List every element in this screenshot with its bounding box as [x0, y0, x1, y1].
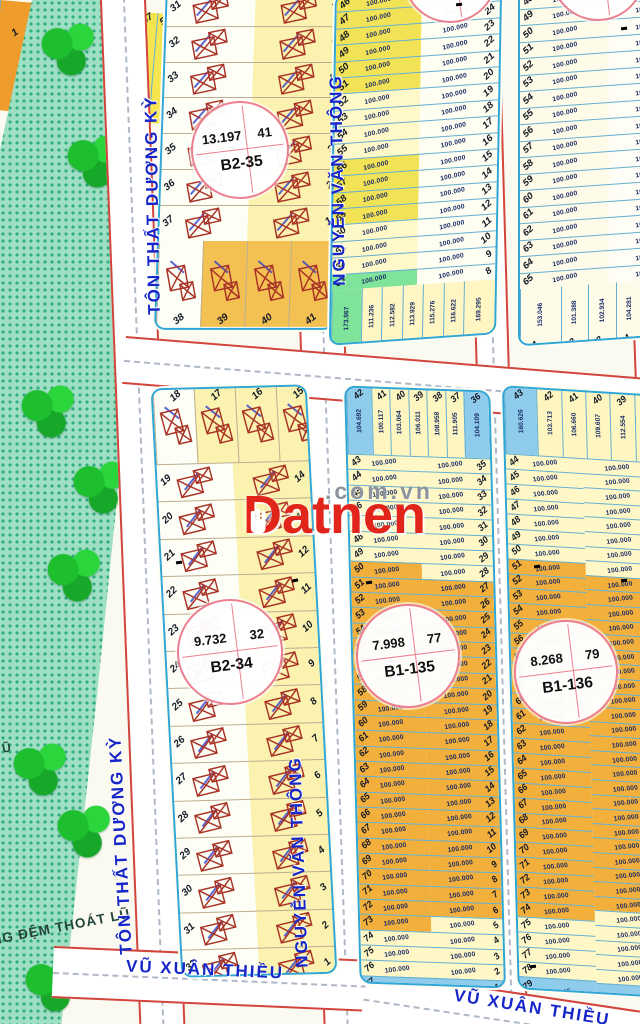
lot-number: 1	[322, 957, 334, 969]
lot-area-value: 100.000	[613, 813, 639, 822]
lot-number: 39	[216, 311, 232, 327]
lot-number: 21	[482, 51, 497, 66]
lot-number: 38	[430, 390, 444, 404]
lot-area-value: 100.000	[365, 61, 391, 74]
lot-row-bottom: 38 39	[156, 241, 335, 327]
lot-cell: 14	[233, 460, 311, 499]
lot-area-value: 100.000	[604, 478, 630, 487]
lot-number: 15	[482, 765, 496, 779]
lot-number: 9	[483, 249, 494, 261]
lot-number: 51	[352, 576, 366, 590]
lot-number: 5	[491, 920, 501, 931]
lot-area-value: 100.000	[635, 35, 640, 48]
lot-number: 8	[309, 695, 321, 707]
lot-area-value: 101.388	[571, 300, 578, 324]
lot-number: 3	[318, 882, 330, 894]
lot-number: 4	[491, 935, 501, 946]
house-icon	[188, 762, 234, 799]
lot-area-value: 100.000	[441, 88, 467, 101]
lot-area-value: 100.000	[442, 39, 468, 52]
lot-number: 11	[480, 215, 495, 230]
lot-area-value: 100.000	[447, 844, 473, 854]
lot-area-value: 100.000	[551, 173, 577, 186]
lot-area-value: 100.000	[551, 25, 577, 38]
house-icon	[162, 261, 198, 306]
lot-number: 4	[316, 845, 328, 857]
lot-number: 76	[519, 932, 533, 946]
lot-number: 25	[478, 611, 492, 625]
lot-area-value: 100.000	[543, 892, 569, 901]
lot-area-value: 100.000	[541, 817, 567, 826]
lot-area-value: 100.000	[615, 886, 640, 895]
lot-cell: 41 100.117	[371, 388, 391, 455]
lot-area-value: 100.000	[366, 28, 392, 41]
lot-area-value: 100.000	[446, 798, 472, 808]
lot-number: 41	[374, 388, 388, 402]
lot-number: 54	[511, 603, 525, 617]
lot-area-value: 100.000	[445, 767, 471, 777]
house-icon	[250, 499, 296, 536]
lot-area-value: 100.000	[437, 460, 463, 470]
lot-area-value: 164.535	[617, 995, 640, 999]
lot-number: 74	[361, 929, 375, 943]
house-icon	[186, 725, 232, 762]
block-strip-1: 46 100.000 47 100.000 48 100.000 49 100.…	[329, 0, 502, 346]
lot-area-value: 100.000	[635, 2, 640, 15]
lot-number: 75	[519, 917, 533, 931]
lot-area-value: 100.000	[439, 236, 465, 249]
lot-cell: 27	[172, 761, 250, 800]
lot-area-value: 100.000	[450, 951, 476, 961]
lot-area-value: 100.000	[607, 595, 633, 604]
block-area: 13.197	[194, 126, 248, 147]
lot-number: 18	[168, 388, 184, 404]
lot-area-value: 100.000	[378, 734, 404, 744]
lot-area-value: 100.000	[607, 580, 633, 589]
lot-area-value: 100.000	[439, 537, 465, 547]
lot-area-value: 111.905	[452, 413, 460, 436]
lot-number: 2	[492, 966, 502, 977]
lot-number: 46	[508, 484, 522, 498]
lot-cell: 39 106.011	[408, 390, 428, 457]
lot-area-value: 100.000	[381, 872, 407, 882]
lot-area-value: 100.000	[440, 170, 466, 183]
lot-number: 13	[483, 795, 497, 809]
lot-number: 45	[350, 484, 364, 498]
lot-area-value: 100.000	[450, 936, 476, 946]
lot-number: 21	[480, 673, 494, 687]
lot-column-left: 44 100.000 45 100.000 46 100.000 47 100.…	[506, 453, 598, 998]
lot-number: 65	[521, 273, 536, 288]
block-lot-count: 79	[574, 644, 611, 663]
lot-area-value: 100.000	[605, 507, 631, 516]
lot-area-value: 100.000	[551, 157, 577, 170]
lot-area-value: 112.582	[389, 303, 396, 327]
lot-area-value: 108.958	[433, 412, 441, 436]
lot-area-value: 100.000	[384, 964, 410, 974]
lot-area-value: 100.000	[635, 217, 640, 230]
lot-number: 53	[510, 588, 524, 602]
house-icon	[156, 404, 194, 450]
lot-number: 35	[163, 142, 179, 158]
block-area: 9.732	[181, 628, 240, 650]
lot-cell: 3 112.582	[381, 286, 403, 346]
lot-area-value: 100.000	[613, 799, 639, 808]
lot-area-value: 100.000	[635, 101, 640, 114]
lot-area-value: 113.929	[409, 302, 416, 326]
lot-area-value: 100.000	[441, 598, 467, 608]
lot-number: 1	[530, 339, 541, 347]
lot-number: 67	[516, 797, 530, 811]
lot-number: 55	[521, 108, 536, 123]
lot-number: 43	[511, 387, 525, 401]
lot-number: 39	[411, 389, 425, 403]
lot-number: 2	[320, 919, 332, 931]
lot-cell: 20	[158, 500, 236, 539]
lot-area-value: 100.000	[365, 44, 391, 57]
lot-cell: 37 111.905	[445, 391, 465, 458]
lot-area-value: 100.000	[380, 811, 406, 821]
lot-number: 5	[426, 338, 437, 345]
lot-area-value: 100.000	[439, 522, 465, 532]
lot-number: 37	[449, 390, 463, 404]
lot-area-value: 100.000	[371, 489, 397, 499]
lot-area-value: 100.000	[439, 203, 465, 216]
block-lot-count: 41	[247, 122, 282, 141]
lot-area-value: 100.000	[544, 922, 570, 931]
lot-cell: 21	[160, 537, 238, 576]
lot-number: 22	[479, 657, 493, 671]
lot-number: 19	[158, 473, 174, 489]
lot-area-value: 100.000	[443, 690, 469, 700]
lot-cell: 41 106.660	[561, 391, 587, 458]
lot-number: 59	[521, 174, 536, 189]
lot-number: 8	[483, 265, 494, 277]
lot-row-bottom: 1 173.867 2 111.236 3 112.582 4 113.929 …	[331, 279, 495, 346]
lot-area-value: 100.000	[371, 473, 397, 483]
lot-number: 63	[357, 760, 371, 774]
house-icon	[262, 723, 308, 760]
lot-area-value: 100.000	[444, 706, 470, 716]
house-icon	[174, 501, 220, 538]
lot-area-value: 100.000	[635, 200, 640, 213]
lot-cell: 1 164.535	[597, 983, 640, 998]
lot-number: 14	[483, 780, 497, 794]
house-icon	[197, 403, 235, 449]
lot-area-value: 100.000	[441, 105, 467, 118]
lot-number: 73	[361, 914, 375, 928]
house-icon	[277, 0, 321, 27]
lot-cell: 19	[157, 462, 235, 501]
lot-number: 75	[362, 945, 376, 959]
lot-cell: 12	[236, 535, 314, 574]
block-area: 7.998	[360, 632, 418, 654]
lot-number: 76	[362, 960, 376, 974]
lot-number: 17	[209, 387, 225, 403]
lot-number: 66	[358, 806, 372, 820]
lot-row-top: 42 104.692 41 100.117 40 103.064 39 106.…	[346, 388, 490, 459]
lot-number: 48	[351, 530, 365, 544]
lot-area-value: 100.000	[451, 966, 477, 976]
lot-area-value: 104.692	[356, 409, 364, 433]
lot-number: 58	[521, 157, 536, 172]
lot-area-value: 100.000	[539, 758, 565, 767]
lot-area-value: 100.000	[611, 740, 637, 749]
lot-number: 71	[517, 857, 531, 871]
lot-area-value: 100.000	[616, 916, 640, 925]
lot-area-value: 100.000	[373, 550, 399, 560]
lot-area-value: 100.000	[635, 167, 640, 180]
lot-area-value: 100.000	[366, 12, 392, 25]
lot-area-value: 100.000	[534, 564, 560, 573]
house-icon	[252, 536, 298, 573]
lot-area-value: 100.000	[612, 784, 638, 793]
lot-number: 22	[482, 34, 497, 49]
lot-area-value: 100.000	[383, 949, 409, 959]
lot-area-value: 100.000	[378, 749, 404, 759]
lot-column-right: 35 100.000 34 100.000 33 100.000 32 100.…	[419, 456, 505, 988]
lot-number: 62	[514, 722, 528, 736]
house-icon	[194, 874, 240, 911]
lot-area-value: 100.000	[610, 697, 636, 706]
lot-number: 44	[349, 469, 363, 483]
lot-number: 6	[312, 770, 324, 782]
lot-area-value: 100.000	[381, 841, 407, 851]
lot-number: 40	[393, 388, 407, 402]
lot-number: 64	[521, 256, 536, 271]
lot-area-value: 100.000	[373, 535, 399, 545]
lot-number: 31	[168, 0, 184, 14]
lot-number: 49	[337, 45, 352, 60]
lot-number: 19	[481, 703, 495, 717]
lot-area-value: 100.000	[362, 225, 388, 238]
lot-area-value: 100.000	[617, 974, 640, 983]
lot-cell: 31	[180, 910, 258, 949]
lot-number: 16	[481, 133, 496, 148]
lot-number: 60	[521, 190, 536, 205]
lot-area-value: 100.000	[551, 124, 577, 137]
lot-area-value: 100.000	[539, 743, 565, 752]
house-icon	[176, 538, 222, 575]
lot-cell: 13	[234, 498, 312, 537]
lot-area-value: 100.000	[551, 58, 577, 71]
lot-number: 13	[294, 507, 310, 523]
lot-number: 19	[481, 83, 496, 98]
lot-cell: 40	[244, 241, 291, 327]
lot-area-value: 100.000	[449, 890, 475, 900]
lot-area-value: 100.000	[441, 583, 467, 593]
lot-area-value: 153.046	[537, 303, 544, 327]
lot-number: 59	[355, 699, 369, 713]
lot-number: 10	[484, 841, 498, 855]
lot-number: 64	[515, 752, 529, 766]
lot-area-value: 100.000	[551, 239, 577, 252]
lot-area-value: 104.109	[474, 413, 482, 437]
lot-area-value: 100.000	[607, 565, 633, 574]
street-label-nguyen-van-thong: NGUYỄN VĂN THÔNG	[326, 74, 350, 286]
lot-cell: 4 104.281	[616, 281, 640, 347]
lot-number: 50	[509, 543, 523, 557]
lot-number: 65	[515, 767, 529, 781]
lot-area-value: 100.000	[551, 41, 577, 54]
lot-number: 32	[167, 34, 183, 50]
lot-area-value: 100.000	[612, 755, 638, 764]
house-icon	[270, 205, 314, 242]
lot-number: 16	[482, 749, 496, 763]
lot-row-bottom: 1 153.046 2 101.388 3 102.934 4 104.281 …	[520, 277, 640, 347]
lot-cell: 31	[167, 0, 256, 26]
block-code: B1-136	[541, 668, 594, 697]
lot-number: 57	[521, 141, 536, 156]
lot-area-value: 100.000	[438, 268, 464, 281]
lot-number: 17	[481, 116, 496, 131]
lot-cell: 7	[255, 0, 344, 26]
house-icon	[238, 402, 276, 448]
lot-number: 63	[521, 240, 536, 255]
lot-area-value: 100.000	[608, 609, 634, 618]
house-icon	[189, 0, 233, 27]
lot-area-value: 100.000	[542, 877, 568, 886]
lot-area-value: 100.000	[372, 519, 398, 529]
lot-number: 11	[299, 582, 314, 597]
lot-number: 18	[481, 100, 496, 115]
lot-number: 28	[176, 809, 192, 825]
lot-cell: 1	[247, 205, 336, 241]
lot-area-value: 100.000	[635, 19, 640, 32]
lot-area-value: 100.000	[438, 252, 464, 265]
lot-area-value: 100.000	[614, 843, 640, 852]
lot-number: 48	[337, 29, 352, 44]
lot-number: 14	[480, 165, 495, 180]
lot-area-value: 100.000	[535, 578, 561, 587]
lot-area-value: 100.000	[635, 52, 640, 65]
lot-number: 27	[174, 772, 190, 788]
lot-cell: 6	[253, 26, 342, 62]
lot-area-value: 100.000	[542, 862, 568, 871]
lot-area-value: 100.000	[551, 190, 577, 203]
house-icon	[172, 464, 218, 501]
lot-area-value: 100.000	[545, 967, 571, 976]
lot-area-value: 100.117	[378, 410, 386, 434]
house-icon	[276, 26, 320, 63]
lot-area-value: 100.000	[374, 581, 400, 591]
lot-cell: 36 104.109	[464, 392, 490, 459]
lot-number: 74	[519, 902, 533, 916]
house-icon	[250, 261, 286, 306]
lot-column-left: 48 100.000 49 100.000 50 100.000 51 100.…	[520, 0, 609, 289]
lot-area-value: 100.000	[534, 549, 560, 558]
lot-number: 77	[520, 946, 534, 960]
lot-cell: 7	[246, 722, 324, 761]
lot-cell: 29	[176, 836, 254, 875]
lot-number: 46	[350, 500, 364, 514]
lot-area-value: 100.000	[540, 773, 566, 782]
lot-area-value: 104.281	[626, 296, 633, 320]
lot-cell: 6 116.622	[442, 281, 464, 345]
lot-cell: 28	[174, 798, 252, 837]
lot-number: 62	[521, 223, 536, 238]
lot-number: 36	[162, 177, 178, 193]
lot-number: 64	[357, 776, 371, 790]
lot-area-value: 100.000	[543, 907, 569, 916]
lot-area-value: 100.000	[617, 945, 640, 954]
lot-area-value: 100.000	[616, 930, 640, 939]
lot-cell: 43 160.626	[504, 387, 538, 455]
street-label-ton-that-duong-ky: TÔN THẤT DƯƠNG KỲ	[141, 95, 165, 315]
house-icon	[275, 62, 319, 99]
lot-cell: 39 112.554	[610, 394, 636, 461]
house-icon	[181, 205, 225, 242]
lot-area-value: 100.000	[551, 272, 577, 285]
lot-area-value: 173.867	[343, 306, 350, 330]
lot-area-value: 100.000	[440, 154, 466, 167]
lot-area-value: 100.000	[614, 857, 640, 866]
lot-number: 15	[480, 149, 495, 164]
lot-number: 9	[307, 658, 319, 670]
lot-area-value: 100.000	[439, 219, 465, 232]
lot-number: 1	[10, 27, 21, 39]
lot-area-value: 100.000	[447, 828, 473, 838]
lot-cell: 38 108.958	[427, 390, 447, 457]
lot-area-value: 100.000	[540, 787, 566, 796]
lot-cell: 3 102.934	[588, 283, 615, 347]
lot-number: 4	[406, 340, 417, 346]
lot-number: 61	[356, 730, 370, 744]
lot-number: 16	[250, 386, 266, 402]
lot-area-value: 100.000	[610, 711, 636, 720]
lot-number: 10	[479, 231, 494, 246]
lot-number: 48	[508, 513, 522, 527]
lot-number: 13	[480, 182, 495, 197]
lot-column-right: 25 100.000 24 100.000 23 100.000 22 100.…	[609, 0, 640, 283]
lot-cell: 37	[159, 205, 248, 241]
lot-cell: 39	[200, 241, 247, 327]
lot-area-value: 100.000	[538, 728, 564, 737]
lot-area-value: 100.000	[532, 474, 558, 483]
lot-area-value: 103.713	[546, 411, 554, 435]
lot-number: 30	[180, 884, 196, 900]
lot-area-value: 100.000	[635, 134, 640, 147]
lot-area-value: 100.000	[442, 72, 468, 85]
lot-area-value: 100.000	[383, 933, 409, 943]
lot-number: 71	[360, 883, 374, 897]
lot-number: 40	[590, 392, 604, 406]
lot-area-value: 100.000	[608, 624, 634, 633]
lot-area-value: 100.000	[611, 726, 637, 735]
lot-number: 72	[518, 872, 532, 886]
lot-area-value: 100.000	[613, 828, 639, 837]
lot-number: 34	[164, 106, 180, 122]
lot-number: 50	[352, 561, 366, 575]
lot-area-value: 100.000	[604, 463, 630, 472]
lot-number: 61	[521, 207, 536, 222]
lot-number: 52	[521, 58, 536, 73]
lot-number: 50	[521, 25, 536, 40]
house-icon	[248, 462, 294, 499]
lot-area-value: 103.064	[396, 410, 404, 434]
lot-area-value: 100.000	[635, 85, 640, 98]
lot-area-value: 100.000	[362, 257, 388, 270]
lot-number: 27	[477, 580, 491, 594]
lot-number: 49	[351, 546, 365, 560]
lot-area-value: 100.000	[635, 184, 640, 197]
park-zone-label-partial: Ũ	[1, 740, 13, 755]
lot-number: 3	[491, 950, 501, 961]
block-code: B2-34	[209, 649, 254, 677]
lot-area-value: 100.000	[377, 719, 403, 729]
lot-number: 6	[490, 904, 500, 915]
lot-area-value: 100.000	[449, 920, 475, 930]
